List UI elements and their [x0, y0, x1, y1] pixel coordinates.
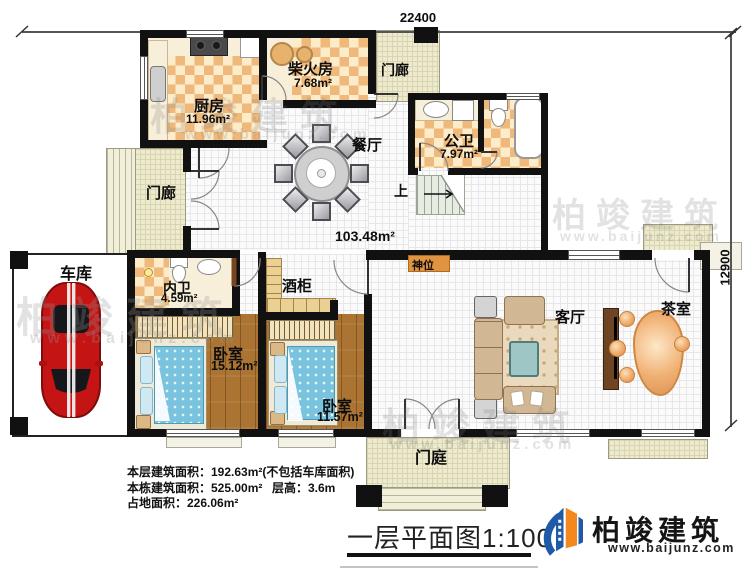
- side-table: [474, 398, 497, 419]
- pillow: [140, 387, 153, 415]
- window: [278, 429, 334, 437]
- logo-slab: [579, 517, 584, 545]
- brand-url: www.baijunz.com: [608, 541, 735, 555]
- wall: [140, 140, 267, 148]
- dimension-label-right: 12900: [718, 239, 733, 297]
- room-area-inner-bath: 4.59m²: [161, 293, 197, 305]
- room-area-bedroom-b: 11.57m²: [317, 410, 363, 424]
- pillar: [10, 251, 28, 269]
- window: [516, 429, 590, 437]
- wall: [127, 250, 135, 437]
- pillar: [356, 485, 382, 507]
- cushion: [510, 390, 525, 407]
- floor-plan-sheet: 22400 12900: [0, 0, 750, 572]
- coffee-table: [509, 341, 539, 377]
- sofa: [504, 296, 545, 325]
- closet: [136, 316, 234, 338]
- tea-stool: [674, 336, 690, 352]
- wall: [259, 38, 267, 100]
- stats-land-area: 占地面积：226.06m²: [127, 494, 238, 511]
- wall: [232, 250, 240, 308]
- door-opening: [652, 250, 694, 260]
- brand-logo-icon: [538, 503, 586, 559]
- dining-chair: [274, 164, 293, 183]
- bathtub: [514, 97, 544, 159]
- logo-tower-orange: [566, 508, 577, 549]
- wall: [408, 168, 418, 175]
- dining-chair: [350, 164, 369, 183]
- window-sill: [278, 437, 336, 448]
- wall: [448, 168, 548, 175]
- room-label-porch-top: 门廊: [381, 60, 409, 80]
- wall: [266, 312, 336, 320]
- wall: [283, 100, 376, 108]
- wall: [368, 30, 376, 94]
- stove: [190, 36, 228, 56]
- sofa: [474, 318, 503, 400]
- wall: [140, 30, 376, 38]
- room-label-entry: 门庭: [415, 444, 447, 468]
- room-label-porch-left: 门廊: [146, 182, 176, 203]
- window: [186, 30, 224, 38]
- logo-window: [558, 526, 561, 529]
- room-label-dining: 餐厅: [352, 134, 382, 155]
- shrine-label: 神位: [412, 257, 434, 273]
- title-underline-light: [340, 566, 538, 568]
- wall: [366, 250, 548, 260]
- wall: [330, 300, 338, 320]
- tea-stool: [609, 340, 626, 357]
- wall: [702, 250, 710, 437]
- nightstand: [136, 340, 151, 354]
- dining-chair: [312, 124, 331, 143]
- room-area-public-bath: 7.97m²: [440, 147, 478, 161]
- door-opening: [401, 429, 459, 437]
- inner-bath-sink: [197, 259, 221, 275]
- room-area-firewood: 7.68m²: [294, 76, 332, 90]
- room-area-bedroom-a: 15.12m²: [211, 359, 258, 373]
- pillow: [140, 356, 153, 384]
- hall-area-label: 103.48m²: [335, 228, 395, 244]
- wall: [183, 148, 191, 172]
- pillar: [10, 417, 28, 435]
- kitchen-sink: [150, 66, 166, 102]
- pillow: [274, 386, 287, 414]
- logo-tower: [556, 508, 564, 552]
- dimension-line-right: [730, 33, 732, 427]
- stairs-up-label: 上: [394, 181, 408, 201]
- platform-southeast: [608, 439, 708, 459]
- dimension-label-top: 22400: [382, 10, 454, 25]
- room-label-tea: 茶室: [661, 298, 691, 319]
- window: [140, 56, 148, 100]
- wall: [364, 294, 372, 437]
- sofa: [503, 386, 556, 414]
- floor-drain: [144, 268, 153, 277]
- table-center: [317, 169, 326, 178]
- dimension-line-top: [22, 31, 736, 33]
- wall: [408, 93, 415, 175]
- stats-floor-height: 层高：3.6m: [272, 479, 335, 496]
- wine-cabinet-label: 酒柜: [282, 275, 312, 296]
- room-label-garage: 车库: [60, 260, 92, 284]
- window: [166, 429, 240, 437]
- stats-floor-area: 本层建筑面积：192.63m²(不包括车库面积): [127, 463, 354, 480]
- closet: [268, 320, 336, 340]
- entry-steps: [378, 487, 486, 511]
- tea-stool: [619, 367, 635, 383]
- wall: [127, 250, 232, 258]
- burner: [211, 40, 222, 51]
- stairs: [416, 175, 465, 215]
- pillar: [414, 27, 438, 43]
- logo-window: [558, 520, 561, 523]
- logo-window: [558, 538, 561, 541]
- burner: [195, 40, 206, 51]
- dining-chair: [312, 202, 331, 221]
- logo-window: [558, 532, 561, 535]
- window: [506, 93, 540, 100]
- cushion: [529, 390, 544, 406]
- wall: [127, 308, 240, 316]
- nightstand: [136, 415, 151, 429]
- sheet-title: 一层平面图1:100: [347, 518, 552, 555]
- washer: [452, 100, 474, 121]
- window: [641, 429, 695, 437]
- bath-sink: [423, 101, 449, 118]
- nightstand: [270, 342, 285, 356]
- window-sill: [166, 437, 242, 448]
- wall: [541, 93, 548, 260]
- porch-left-steps: [106, 148, 136, 254]
- pillow: [274, 355, 287, 383]
- wall: [258, 252, 266, 437]
- pillar: [482, 485, 508, 507]
- duvet: [154, 346, 204, 424]
- tea-stool: [619, 311, 635, 327]
- room-label-living: 客厅: [555, 306, 585, 327]
- window: [568, 250, 620, 260]
- bed: [134, 338, 207, 430]
- title-underline: [347, 553, 531, 557]
- car: [38, 281, 104, 419]
- side-table: [474, 296, 497, 318]
- room-area-kitchen: 11.96m²: [186, 112, 230, 126]
- wall: [478, 100, 484, 152]
